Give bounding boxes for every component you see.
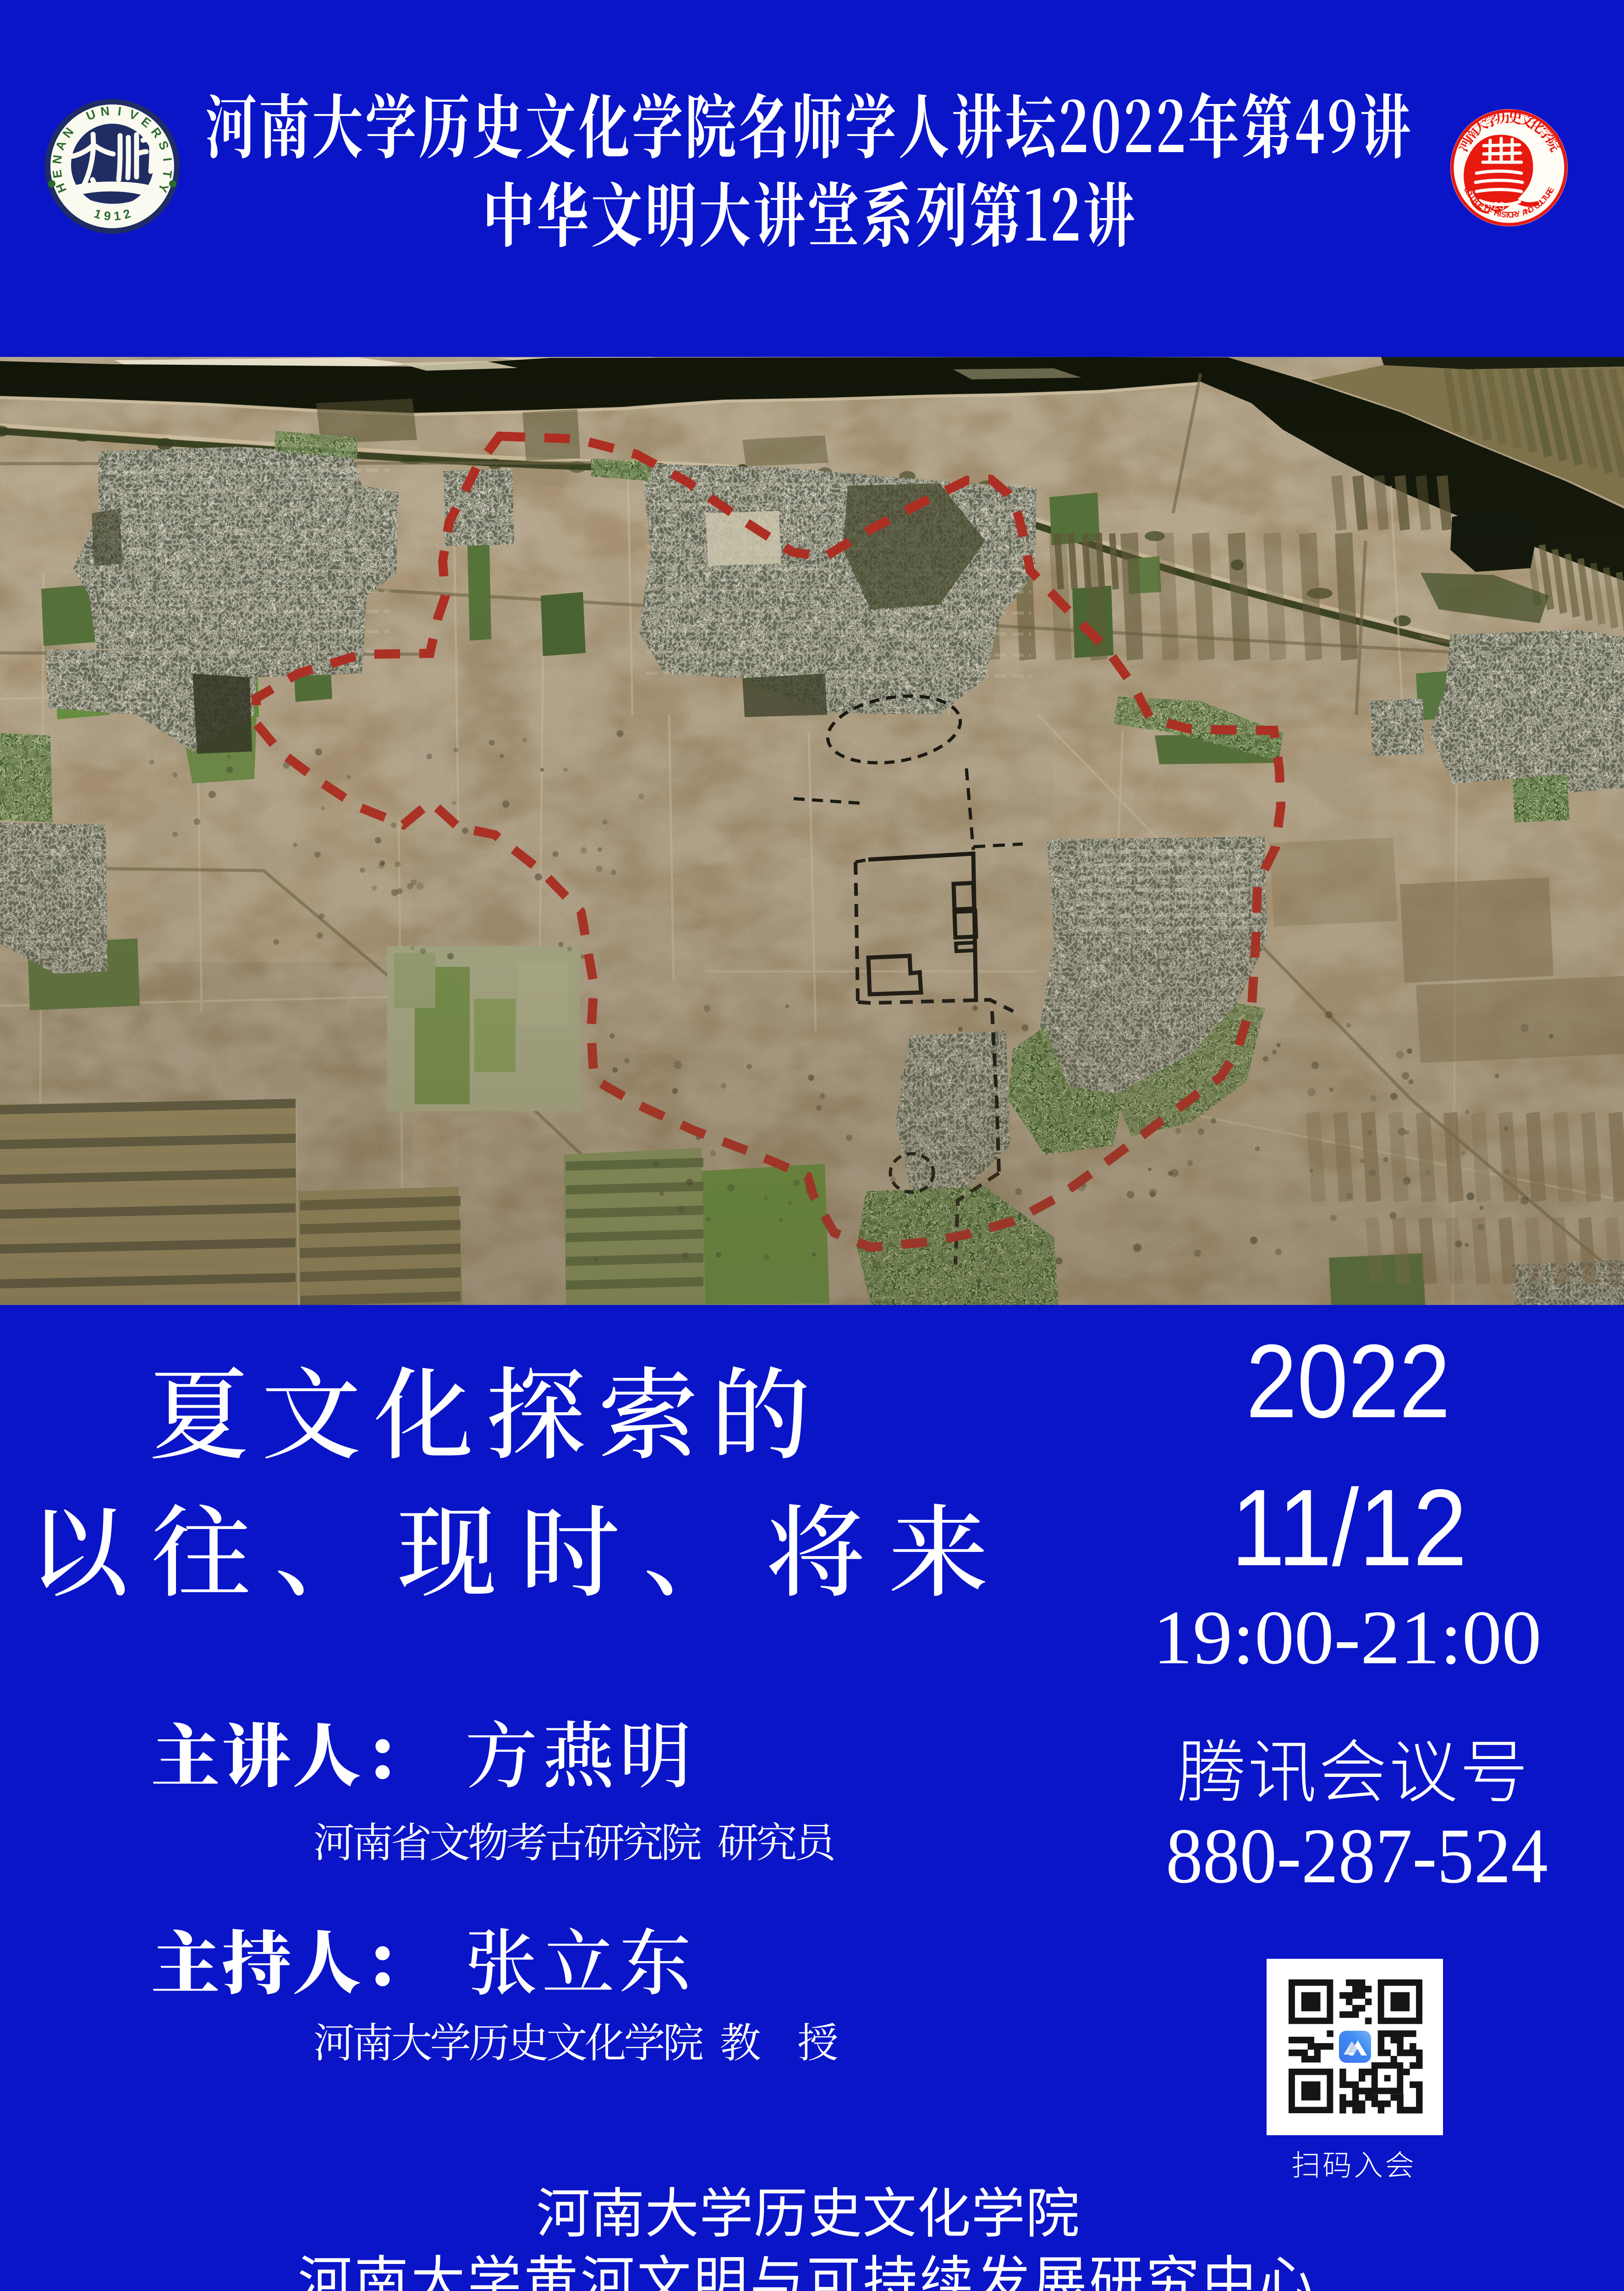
svg-text:N: N — [50, 154, 65, 164]
svg-text:880-287-524: 880-287-524 — [1166, 1813, 1548, 1900]
svg-text:11/12: 11/12 — [1231, 1467, 1467, 1589]
svg-text:1: 1 — [113, 209, 121, 223]
svg-text:N: N — [100, 104, 110, 119]
svg-text:9: 9 — [103, 209, 111, 223]
svg-text:19:00-21:00: 19:00-21:00 — [1153, 1595, 1542, 1680]
svg-text:2022: 2022 — [1246, 1323, 1450, 1440]
